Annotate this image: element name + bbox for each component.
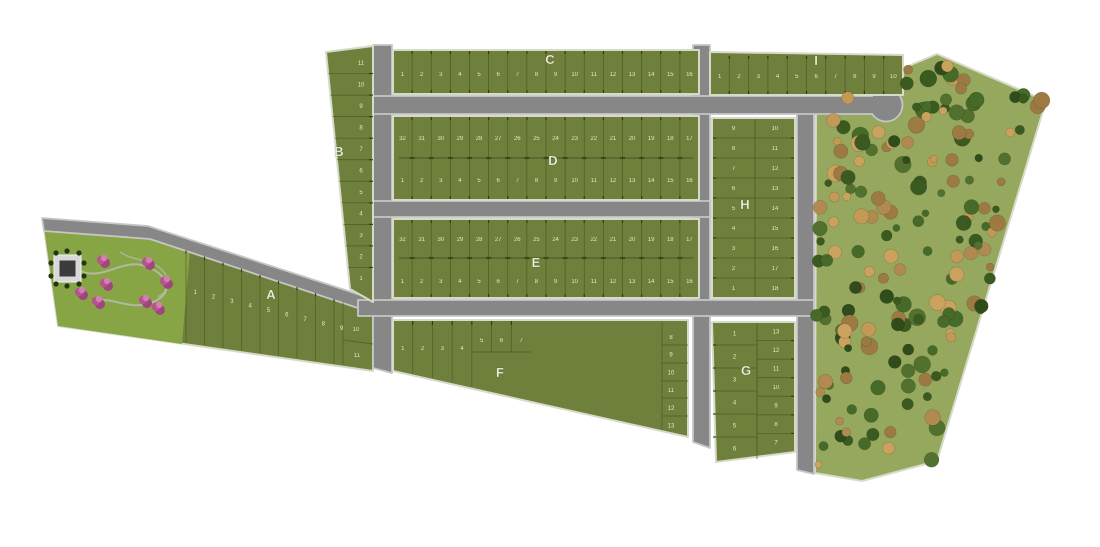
site-plan-svg: 1110987654321123456789101112131415161234… [0,0,1100,547]
lot-number: 11 [772,146,779,152]
lot-number: 12 [610,72,617,78]
lot-number: 16 [686,178,693,184]
road-horizontal-middle [373,201,710,217]
forest-tree [818,374,833,389]
lot-number: 11 [354,353,361,359]
forest-tree [1006,128,1015,137]
flowering-tree [164,276,170,282]
forest-tree [984,273,995,284]
lot-number: 19 [648,136,655,142]
lot-number: 25 [533,237,540,243]
block-h-ground [712,118,795,298]
forest-tree [914,356,931,373]
lot-number: 10 [353,327,360,333]
forest-tree [902,137,914,149]
lot-number: 32 [399,136,406,142]
block-label-b: B [334,144,343,159]
forest-tree [855,135,871,151]
flowering-tree [143,295,149,301]
lot-number: 11 [591,178,598,184]
forest-tree [923,246,932,255]
forest-tree [844,344,851,351]
forest-tree [1033,92,1050,109]
forest-tree [847,405,857,415]
forest-tree [836,417,844,425]
lot-number: 20 [629,237,636,243]
lot-number: 15 [667,72,674,78]
lot-number: 26 [514,136,521,142]
forest-tree [951,250,964,263]
forest-tree [924,452,939,467]
park-bush [64,248,69,253]
forest-tree [888,356,901,369]
lot-number: 10 [773,385,780,391]
block-b-ground [326,46,373,302]
lot-number: 17 [686,136,693,142]
forest-tree [904,65,913,74]
forest-tree [871,191,885,205]
lot-number: 24 [552,136,559,142]
lot-number: 11 [358,61,365,67]
lot-number: 32 [399,237,406,243]
lot-number: 28 [476,237,483,243]
lot-number: 16 [772,246,779,252]
forest-tree [939,107,947,115]
forest-tree [849,281,861,293]
lot-number: 13 [629,279,636,285]
lot-number: 22 [590,237,597,243]
forest-tree [930,155,938,163]
forest-tree [817,237,825,245]
lot-number: 18 [667,136,674,142]
forest-tree [901,379,915,393]
forest-tree [842,428,851,437]
lot-number: 13 [629,72,636,78]
park-bush [64,283,69,288]
forest-tree [834,144,848,158]
lot-number: 23 [571,136,578,142]
forest-tree [854,209,869,224]
road-vertical-east [797,108,814,474]
block-label-g: G [741,363,751,378]
lot-number: 19 [648,237,655,243]
forest-tree [956,215,971,230]
forest-tree [829,192,839,202]
forest-tree [894,263,906,275]
block-label-e: E [532,255,541,270]
site-plan: 1110987654321123456789101112131415161234… [0,0,1100,547]
forest-tree [864,266,875,277]
forest-tree [925,410,941,426]
park-bush [53,281,58,286]
forest-tree [941,60,953,72]
forest-tree [940,369,948,377]
forest-tree [999,153,1011,165]
forest-tree [858,438,870,450]
road-horizontal-north [373,96,878,114]
park-bush [76,250,81,255]
forest-tree [841,170,855,184]
road-horizontal-south [358,300,814,316]
lot-number: 15 [667,178,674,184]
block-f-ground [393,320,688,437]
lot-number: 17 [686,237,693,243]
forest-tree [1019,94,1028,103]
forest-tree [852,245,865,258]
forest-tree [819,441,828,450]
forest-tree [813,200,827,214]
forest-tree [910,179,926,195]
forest-tree [978,202,990,214]
forest-tree [881,230,892,241]
park-bush [76,281,81,286]
forest-tree [893,297,901,305]
flowering-tree [79,287,85,293]
lot-number: 24 [552,237,559,243]
forest-tree [919,373,932,386]
forest-tree [937,315,949,327]
forest-tree [947,175,959,187]
block-label-i: I [814,53,818,68]
forest-tree [825,180,832,187]
forest-tree [989,215,1005,231]
forest-tree [964,247,977,260]
forest-tree [815,461,822,468]
forest-tree [1015,125,1024,134]
lot-number: 12 [773,348,780,354]
forest-tree [855,186,867,198]
lot-number: 11 [773,366,780,372]
forest-tree [913,216,924,227]
lot-number: 21 [610,237,617,243]
lot-number: 20 [629,136,636,142]
block-label-c: C [545,52,555,67]
forest-tree [922,112,932,122]
lot-number: 10 [890,74,897,80]
forest-tree [903,156,911,164]
forest-tree [891,318,904,331]
forest-tree [946,154,959,167]
forest-tree [920,70,937,87]
lot-number: 13 [772,186,779,192]
forest-tree [965,176,973,184]
forest-tree [900,77,913,90]
road-culdesac-neck [862,97,882,113]
lot-number: 31 [418,136,425,142]
forest-tree [813,221,828,236]
lot-number: 29 [457,237,464,243]
forest-tree [914,314,924,324]
forest-tree [923,392,931,400]
forest-tree [992,206,999,213]
forest-tree [922,210,929,217]
lot-number: 17 [772,266,779,272]
forest-tree [928,345,938,355]
lot-number: 12 [610,279,617,285]
forest-tree [828,217,838,227]
lot-number: 10 [571,178,578,184]
lot-number: 10 [772,126,779,132]
lot-number: 11 [591,72,598,78]
park-bush [53,250,58,255]
park-bush [81,260,86,265]
forest-tree [949,105,965,121]
forest-tree [964,200,979,215]
lot-number: 25 [533,136,540,142]
lot-number: 13 [668,424,675,430]
lot-number: 31 [418,237,425,243]
lot-number: 18 [772,286,779,292]
forest-tree [810,309,822,321]
forest-tree [901,364,915,378]
flowering-tree [96,296,102,302]
forest-tree [931,371,941,381]
forest-tree [885,426,897,438]
forest-tree [837,324,852,339]
lot-number: 22 [590,136,597,142]
forest-tree [827,113,841,127]
lot-number: 27 [495,136,502,142]
lot-number: 15 [772,226,779,232]
lot-number: 12 [610,178,617,184]
lot-number: 27 [495,237,502,243]
lot-number: 10 [571,279,578,285]
block-label-d: D [548,153,557,168]
lot-number: 14 [648,72,655,78]
forest-tree [880,290,894,304]
park-bush [81,273,86,278]
forest-tree [949,267,964,282]
lot-number: 12 [772,166,779,172]
forest-tree [878,273,888,283]
forest-tree [888,135,900,147]
block-label-h: H [740,197,749,212]
forest-tree [922,101,932,111]
flowering-tree [146,257,152,263]
lot-number: 11 [591,279,598,285]
forest-tree [884,249,898,263]
lot-number: 18 [667,237,674,243]
forest-tree [893,224,900,231]
forest-tree [986,263,994,271]
forest-tree [871,380,886,395]
forest-tree [821,254,833,266]
lot-number: 10 [358,82,365,88]
forest-tree [955,83,966,94]
forest-tree [929,295,945,311]
block-label-a: A [266,287,276,302]
forest-tree [956,236,964,244]
forest-tree [952,126,966,140]
lot-number: 16 [686,279,693,285]
lot-number: 13 [773,329,780,335]
forest-tree [902,398,913,409]
forest-tree [946,333,956,343]
lot-number: 26 [514,237,521,243]
lot-number: 14 [648,279,655,285]
lot-number: 30 [437,237,444,243]
park-bush [48,273,53,278]
lot-number: 10 [668,370,675,376]
forest-tree [903,344,914,355]
forest-tree [912,103,920,111]
forest-tree [969,92,984,107]
flowering-tree [104,278,110,284]
lot-number: 23 [571,237,578,243]
lot-number: 10 [571,72,578,78]
forest-tree [816,388,825,397]
forest-tree [861,322,875,336]
flowering-tree [101,255,107,261]
park-bush [48,260,53,265]
forest-tree [864,408,878,422]
lot-number: 12 [668,406,675,412]
flowering-tree [156,302,162,308]
block-g-ground [712,322,795,462]
lot-number: 14 [772,206,779,212]
lot-number: 11 [668,388,675,394]
forest-tree [883,442,895,454]
forest-tree [975,154,983,162]
lot-number: 13 [629,178,636,184]
forest-tree [842,92,854,104]
block-label-f: F [496,365,504,380]
forest-tree [938,189,945,196]
park-pavilion [60,261,76,277]
lot-number: 21 [610,136,617,142]
forest-tree [861,337,871,347]
lot-number: 30 [437,136,444,142]
forest-tree [854,156,864,166]
forest-tree [843,193,851,201]
forest-tree [840,372,852,384]
lot-number: 29 [457,136,464,142]
forest-tree [872,126,885,139]
lot-number: 14 [648,178,655,184]
lot-number: 28 [476,136,483,142]
forest-tree [997,178,1005,186]
lot-number: 15 [667,279,674,285]
forest-tree [940,94,952,106]
lot-number: 16 [686,72,693,78]
forest-tree [974,299,988,313]
